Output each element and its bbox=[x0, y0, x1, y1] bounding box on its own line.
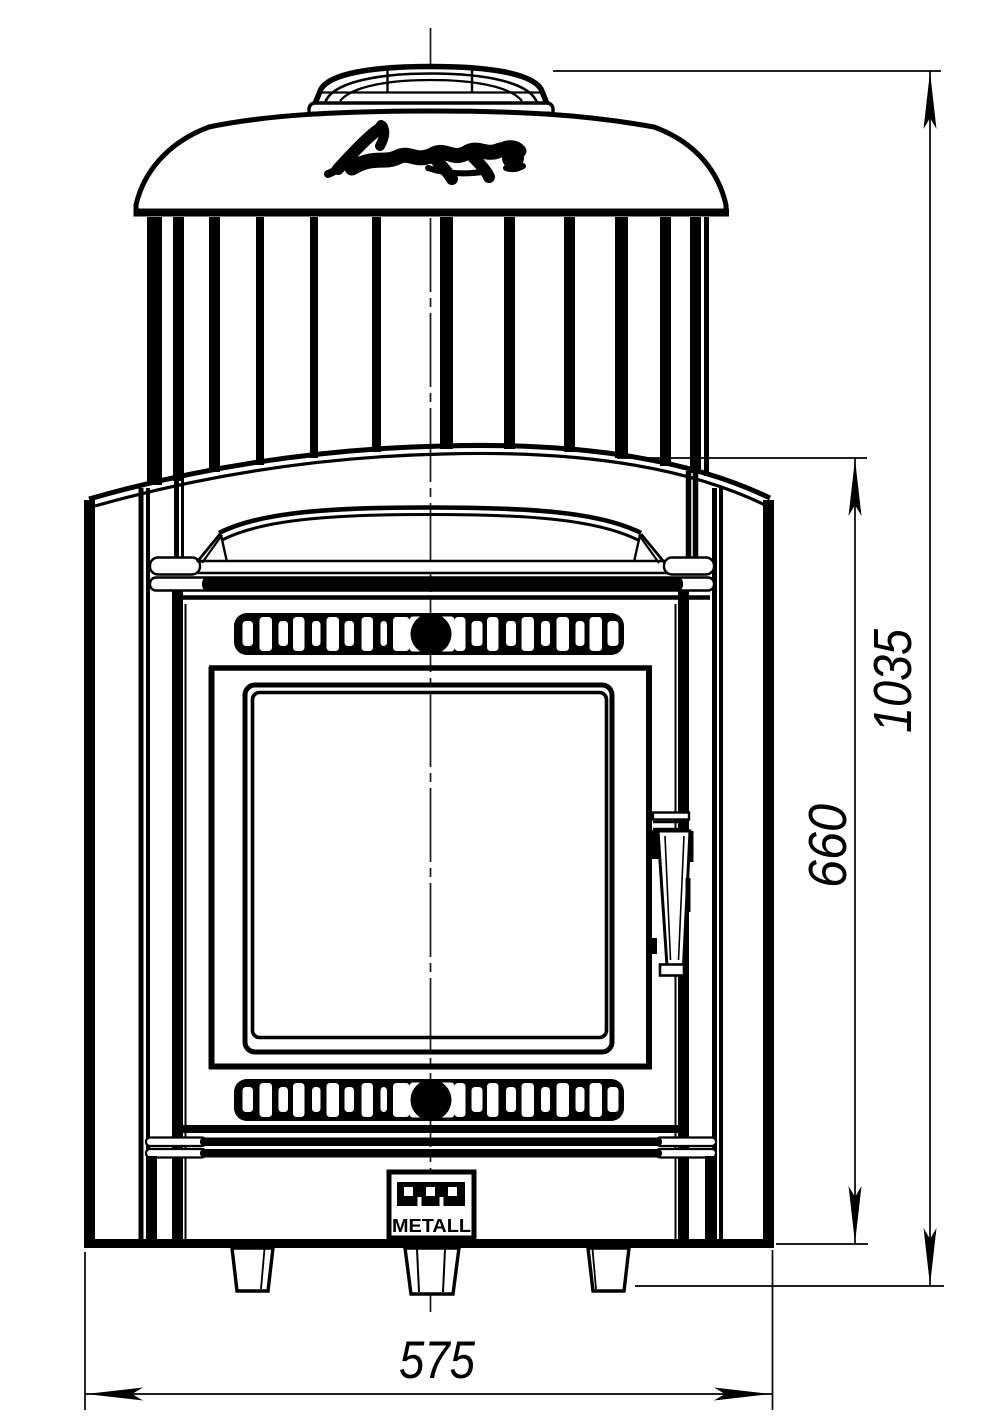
svg-text:1035: 1035 bbox=[863, 628, 923, 733]
svg-text:METALL: METALL bbox=[392, 1215, 471, 1236]
svg-text:575: 575 bbox=[399, 1331, 475, 1390]
svg-text:660: 660 bbox=[798, 804, 858, 888]
